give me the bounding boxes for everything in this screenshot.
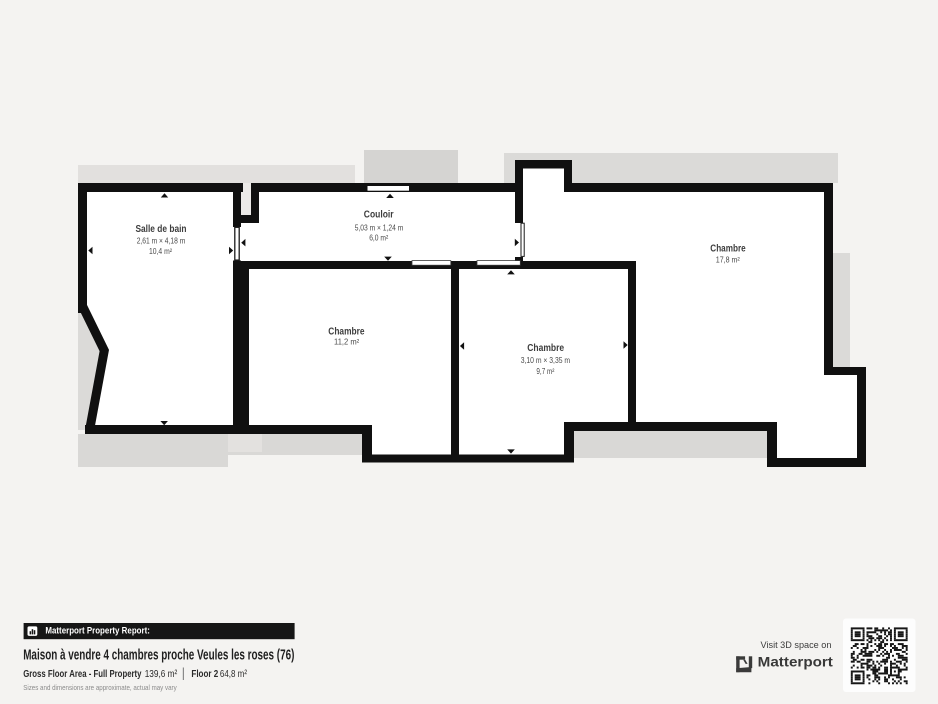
svg-text:Matterport: Matterport	[758, 653, 834, 669]
svg-text:Salle de bain: Salle de bain	[135, 224, 186, 235]
svg-text:9,7 m²: 9,7 m²	[536, 367, 554, 376]
svg-text:Chambre: Chambre	[328, 327, 365, 338]
svg-text:Maison à vendre 4 chambres pro: Maison à vendre 4 chambres proche Veules…	[23, 648, 294, 664]
svg-text:3,10 m × 3,35 m: 3,10 m × 3,35 m	[521, 356, 571, 365]
svg-text:Chambre: Chambre	[527, 343, 564, 354]
svg-text:Gross Floor Area - Full Proper: Gross Floor Area - Full Property	[23, 668, 141, 680]
svg-text:Sizes and dimensions are appro: Sizes and dimensions are approximate, ac…	[23, 683, 177, 692]
svg-text:2,61 m × 4,18 m: 2,61 m × 4,18 m	[137, 237, 186, 246]
svg-text:17,8 m²: 17,8 m²	[716, 256, 740, 265]
svg-text:139,6 m²: 139,6 m²	[145, 668, 178, 680]
svg-text:6,0 m²: 6,0 m²	[369, 234, 388, 243]
svg-text:Floor 2: Floor 2	[191, 668, 218, 680]
svg-text:11,2 m²: 11,2 m²	[334, 338, 359, 347]
svg-text:10,4 m²: 10,4 m²	[149, 247, 172, 256]
svg-text:Chambre: Chambre	[710, 244, 746, 255]
svg-text:Couloir: Couloir	[364, 210, 394, 221]
svg-text:5,03 m × 1,24 m: 5,03 m × 1,24 m	[355, 224, 404, 233]
svg-text:64,8 m²: 64,8 m²	[220, 668, 247, 680]
svg-text:Matterport Property Report:: Matterport Property Report:	[45, 626, 149, 636]
svg-text:Visit 3D space on: Visit 3D space on	[761, 640, 832, 650]
